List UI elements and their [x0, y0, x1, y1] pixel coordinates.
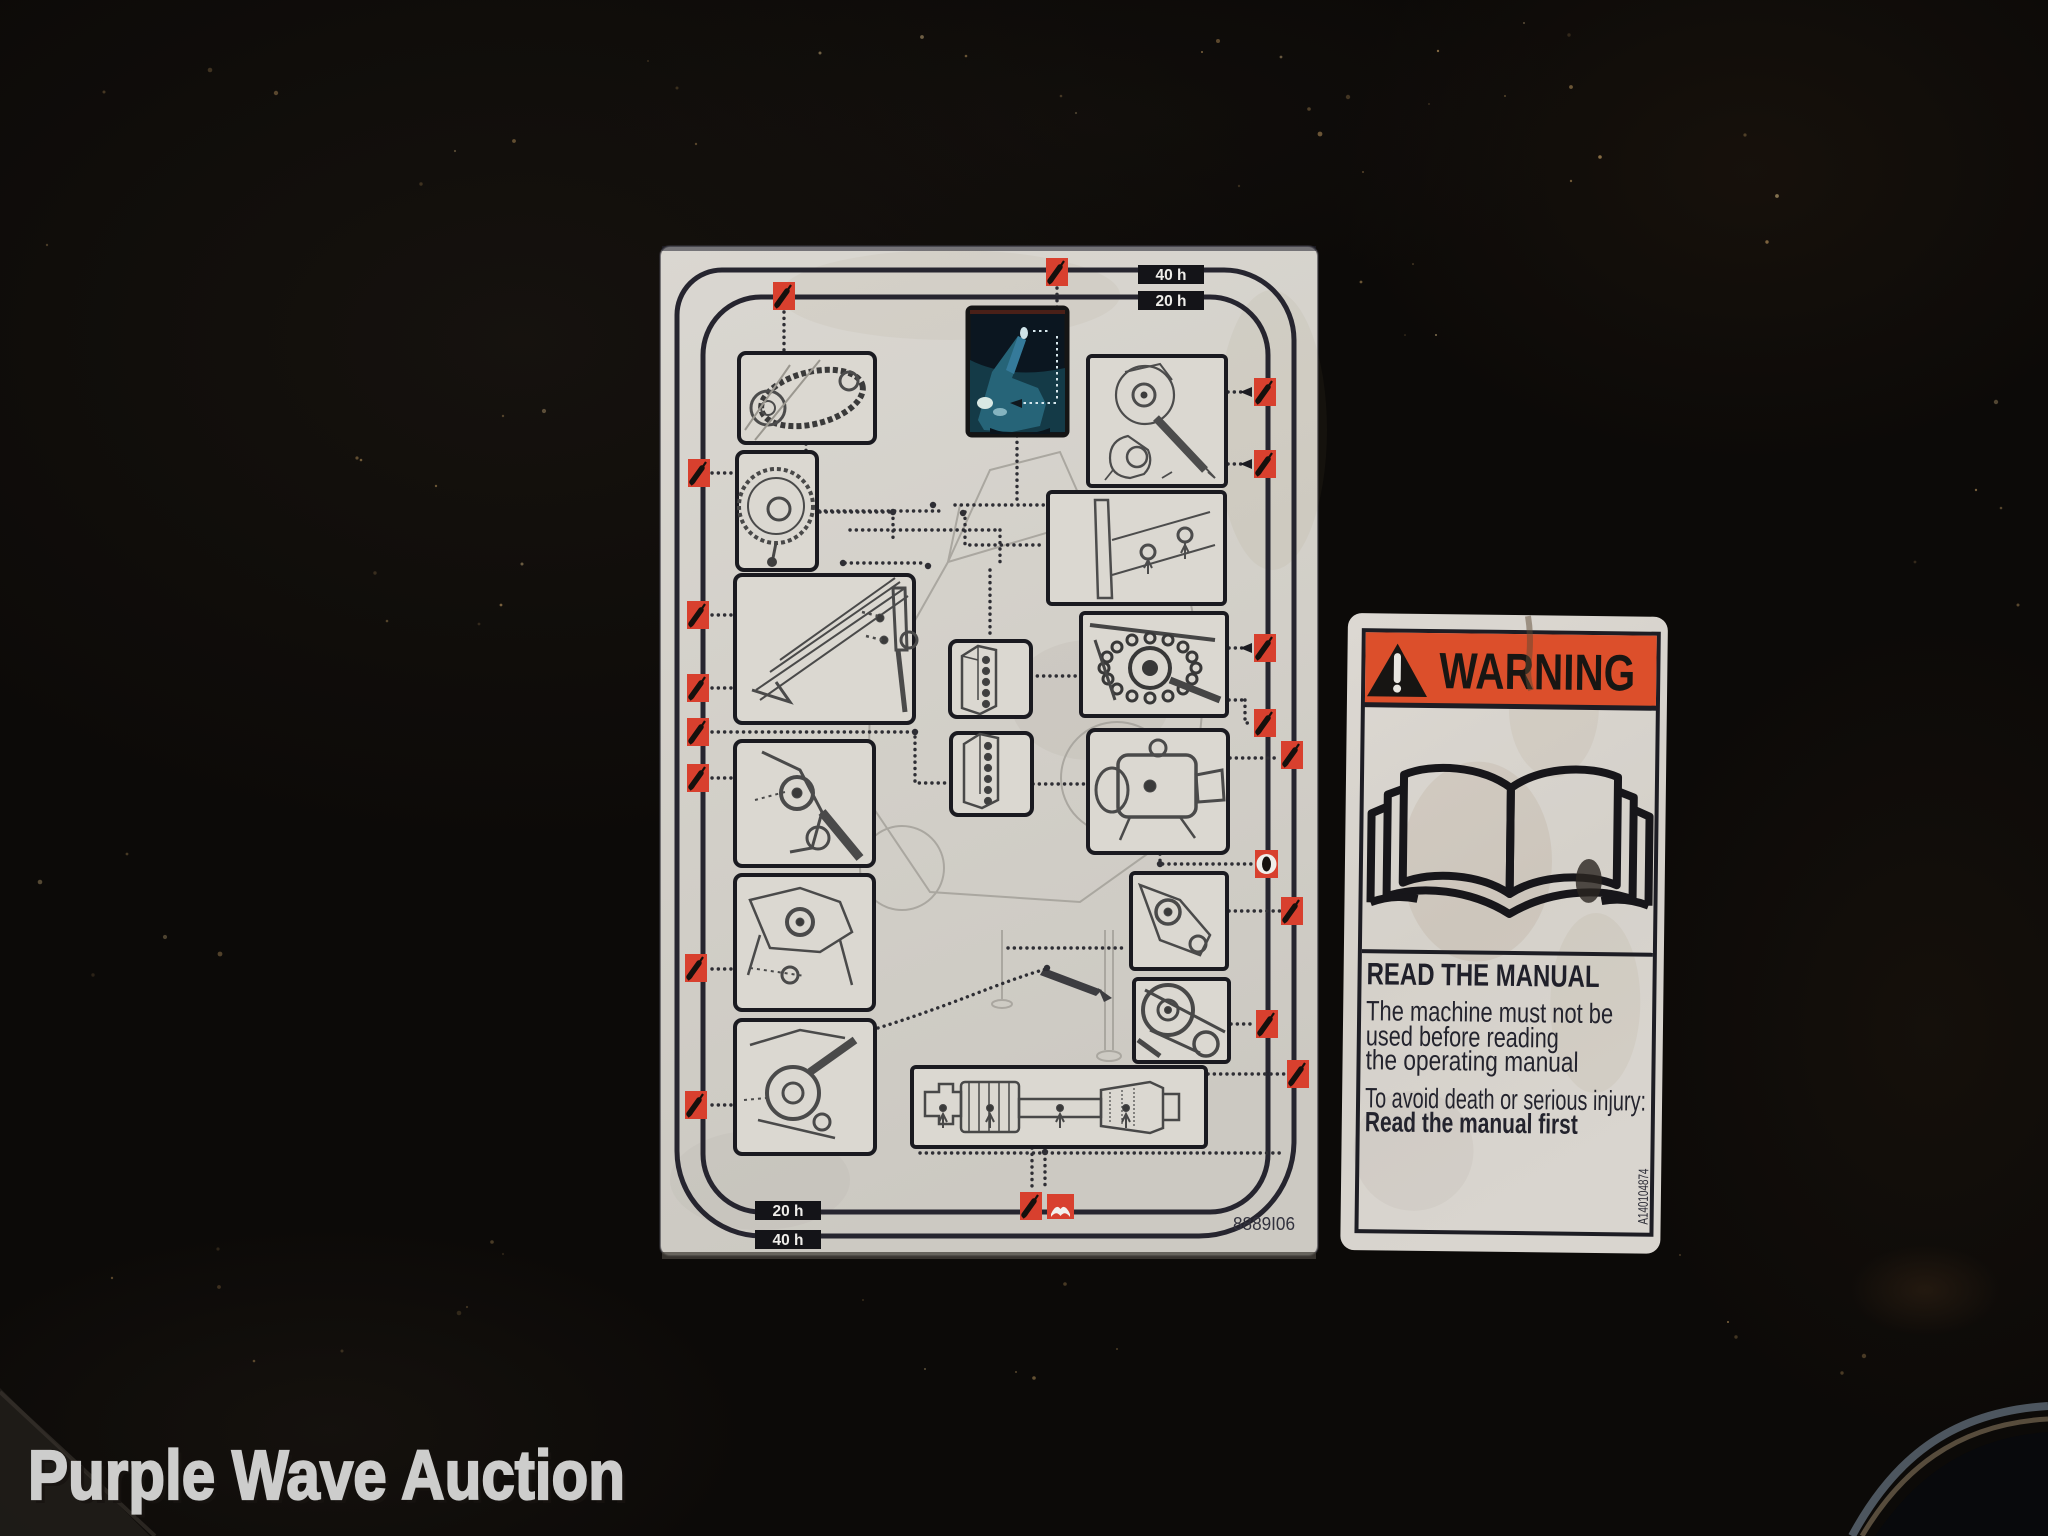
svg-text:A140104874: A140104874 [1635, 1168, 1652, 1224]
svg-text:READ THE MANUAL: READ THE MANUAL [1366, 956, 1599, 994]
svg-text:the operating manual: the operating manual [1365, 1044, 1578, 1078]
svg-text:40 h: 40 h [1155, 267, 1186, 284]
svg-text:WARNING: WARNING [1439, 642, 1636, 701]
svg-text:Purple Wave Auction: Purple Wave Auction [28, 1436, 625, 1514]
svg-text:8889I06: 8889I06 [1233, 1214, 1295, 1234]
svg-text:Read the manual first: Read the manual first [1365, 1106, 1578, 1140]
svg-text:20 h: 20 h [1155, 293, 1186, 310]
svg-text:20 h: 20 h [772, 1203, 803, 1220]
